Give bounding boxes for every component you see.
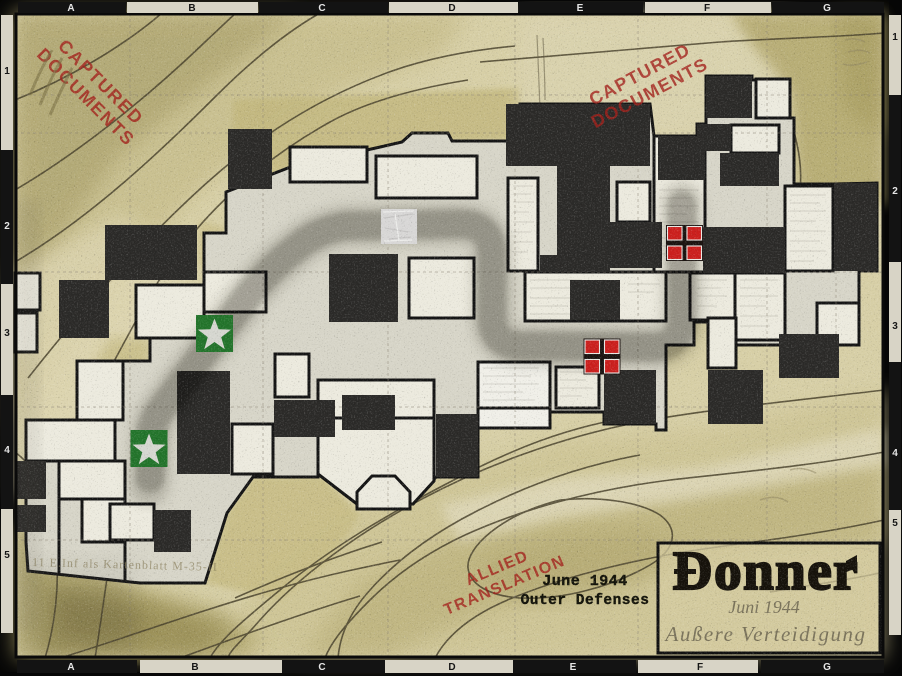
svg-text:G: G: [823, 662, 831, 673]
svg-text:A: A: [67, 3, 74, 14]
svg-text:4: 4: [4, 445, 10, 456]
svg-text:E: E: [570, 662, 577, 673]
svg-text:B: B: [191, 662, 198, 673]
svg-text:5: 5: [892, 518, 898, 529]
svg-text:B: B: [188, 3, 195, 14]
svg-text:D: D: [448, 3, 455, 14]
svg-text:E: E: [577, 3, 584, 14]
svg-text:1: 1: [892, 32, 898, 43]
svg-text:C: C: [318, 662, 325, 673]
svg-text:3: 3: [4, 328, 10, 339]
svg-text:2: 2: [892, 186, 898, 197]
svg-text:D: D: [448, 662, 455, 673]
svg-text:C: C: [318, 3, 325, 14]
svg-text:A: A: [67, 662, 74, 673]
svg-text:2: 2: [4, 221, 10, 232]
svg-text:F: F: [697, 662, 703, 673]
svg-text:5: 5: [4, 550, 10, 561]
svg-text:4: 4: [892, 448, 898, 459]
svg-text:1: 1: [4, 66, 10, 77]
svg-text:3: 3: [892, 321, 898, 332]
svg-text:G: G: [823, 3, 831, 14]
svg-text:F: F: [704, 3, 710, 14]
